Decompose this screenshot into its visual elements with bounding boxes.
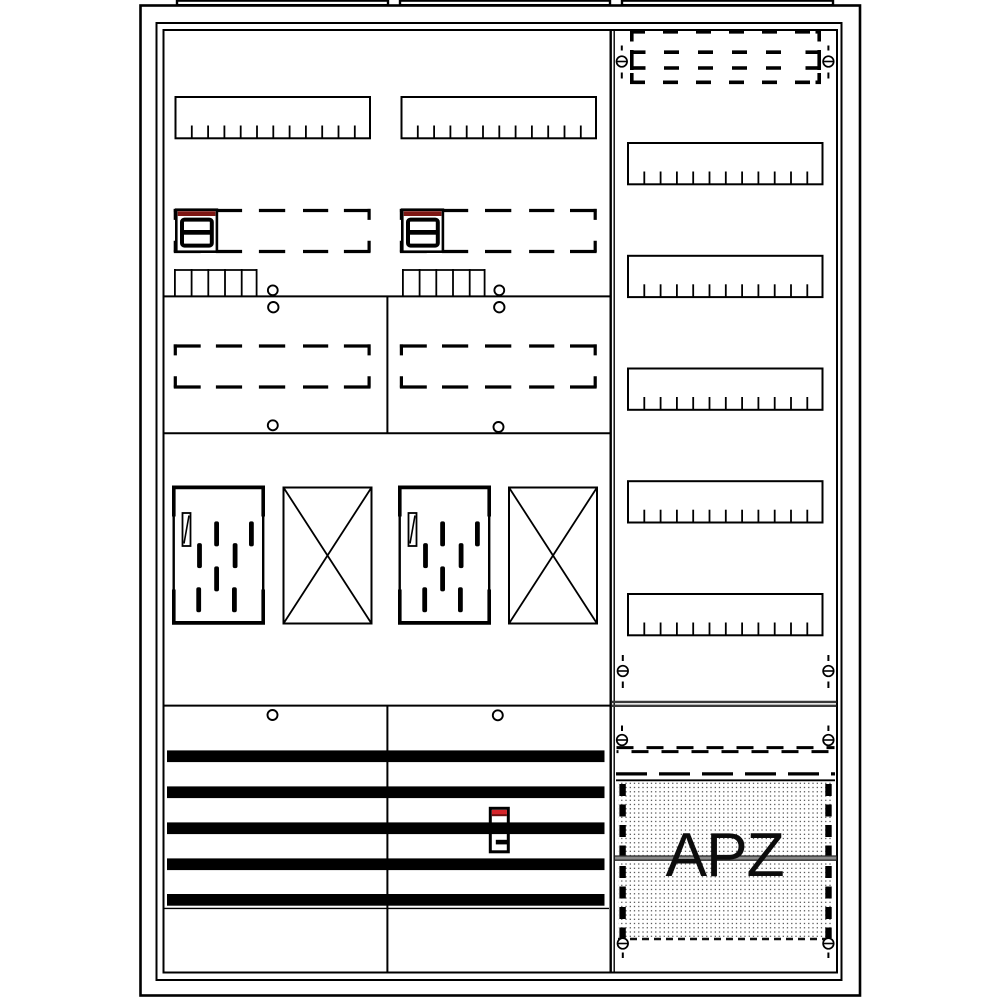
svg-text:APZ: APZ: [666, 820, 784, 890]
